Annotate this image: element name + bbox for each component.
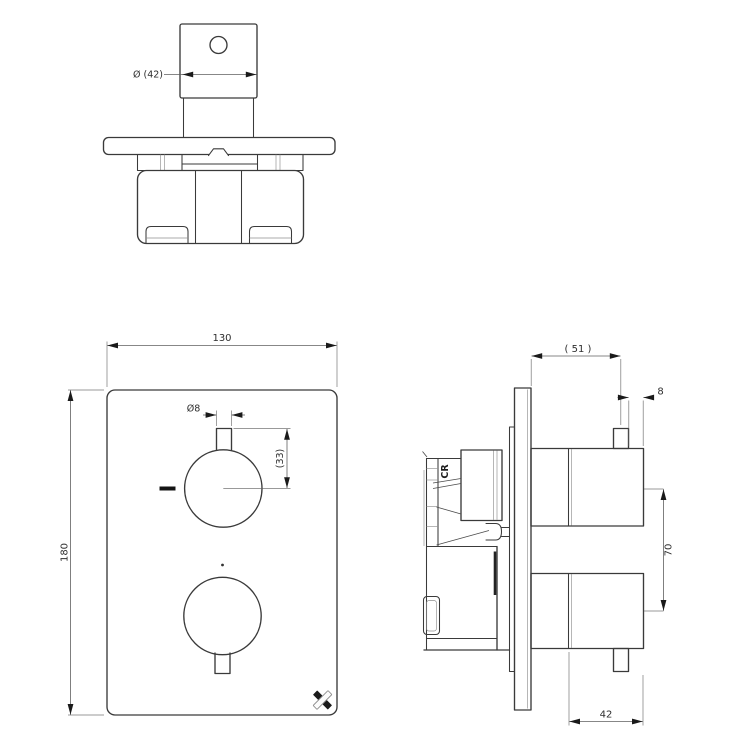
front-upper-knob: [160, 429, 263, 528]
side-view: CR ( 51 ): [423, 344, 675, 726]
dim-label-plate-width: 130: [212, 333, 231, 344]
cartridge-block: [461, 450, 502, 521]
top-view-mounting-brackets: [138, 155, 304, 171]
side-upper-knob: [531, 429, 644, 527]
side-valve-body: CR: [423, 427, 515, 672]
front-wall-plate: [107, 390, 337, 715]
front-width-dimension: 130: [107, 333, 337, 387]
dim-label-pin-offset: (33): [275, 449, 286, 469]
side-centers-dimension: 70: [644, 489, 675, 611]
top-handle-width-dimension: Ø (42): [133, 70, 257, 81]
flow-index-dot: [221, 564, 224, 567]
dim-label-handle-width: Ø (42): [133, 70, 163, 81]
top-view-wall-plate: [104, 138, 336, 157]
valve-body-mark: CR: [440, 464, 451, 479]
side-wall-plate: [515, 388, 532, 710]
dim-label-centers: 70: [664, 544, 675, 557]
front-lower-knob: [184, 564, 261, 674]
front-pin-diameter-dimension: Ø8: [187, 404, 245, 427]
side-knob-diameter-dimension: 42: [569, 652, 643, 726]
dim-label-plate-height: 180: [60, 543, 71, 562]
top-view-valve-body: [138, 171, 304, 244]
technical-drawing-page: Ø (42) 130 180: [0, 0, 741, 741]
top-view-handle: [180, 24, 257, 138]
side-pin-inset-dimension: 8: [618, 387, 664, 447]
inlet-port: [424, 597, 440, 635]
dim-label-pin-diameter: Ø8: [187, 404, 201, 415]
dim-label-pin-inset: 8: [657, 387, 663, 398]
top-view: Ø (42): [104, 24, 336, 244]
upper-pin-side: [614, 429, 629, 449]
dim-label-knob-diameter: 42: [600, 710, 613, 721]
plate-back-bracket: [510, 427, 515, 672]
side-depth-dimension: ( 51 ): [531, 344, 621, 425]
lower-indicator-pin: [215, 653, 230, 674]
technical-drawing-canvas: Ø (42) 130 180: [0, 0, 741, 741]
outlet-boss: [486, 524, 502, 541]
dim-label-depth: ( 51 ): [565, 344, 592, 355]
front-view: 130 180 Ø8 (33): [60, 333, 338, 715]
lower-pin-side: [614, 649, 629, 672]
upper-indicator-pin: [217, 429, 232, 452]
side-lower-knob: [531, 574, 644, 672]
handle-screw-hole: [210, 37, 227, 54]
crosswater-x-logo: [313, 690, 332, 709]
front-height-dimension: 180: [60, 390, 105, 715]
